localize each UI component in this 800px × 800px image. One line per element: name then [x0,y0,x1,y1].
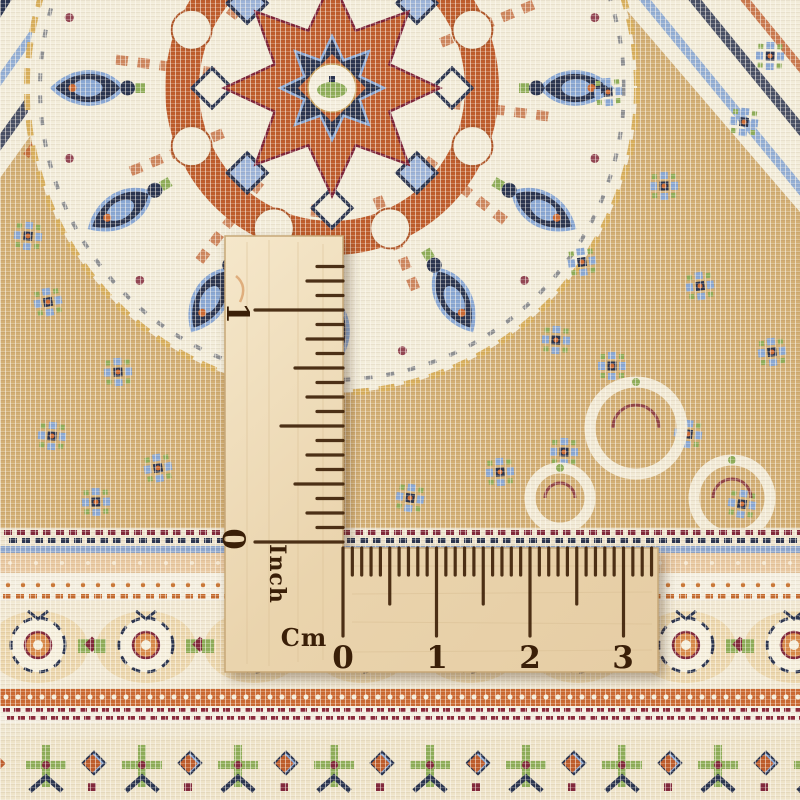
photo-scene: 1 0 Inch Cm 0 1 2 3 [0,0,800,800]
inch-unit-label: Inch [264,544,290,604]
ruler-body [225,236,658,672]
inch-number-1: 1 [219,302,255,324]
cm-number-1: 1 [426,640,448,676]
cm-number-3: 3 [612,640,634,676]
cm-number-0: 0 [332,640,354,676]
cm-unit-label: Cm [281,623,328,652]
inch-number-0: 0 [215,528,251,550]
ruler-wood [225,236,658,672]
wooden-ruler: 1 0 Inch Cm 0 1 2 3 [0,0,800,800]
cm-number-2: 2 [519,640,541,676]
